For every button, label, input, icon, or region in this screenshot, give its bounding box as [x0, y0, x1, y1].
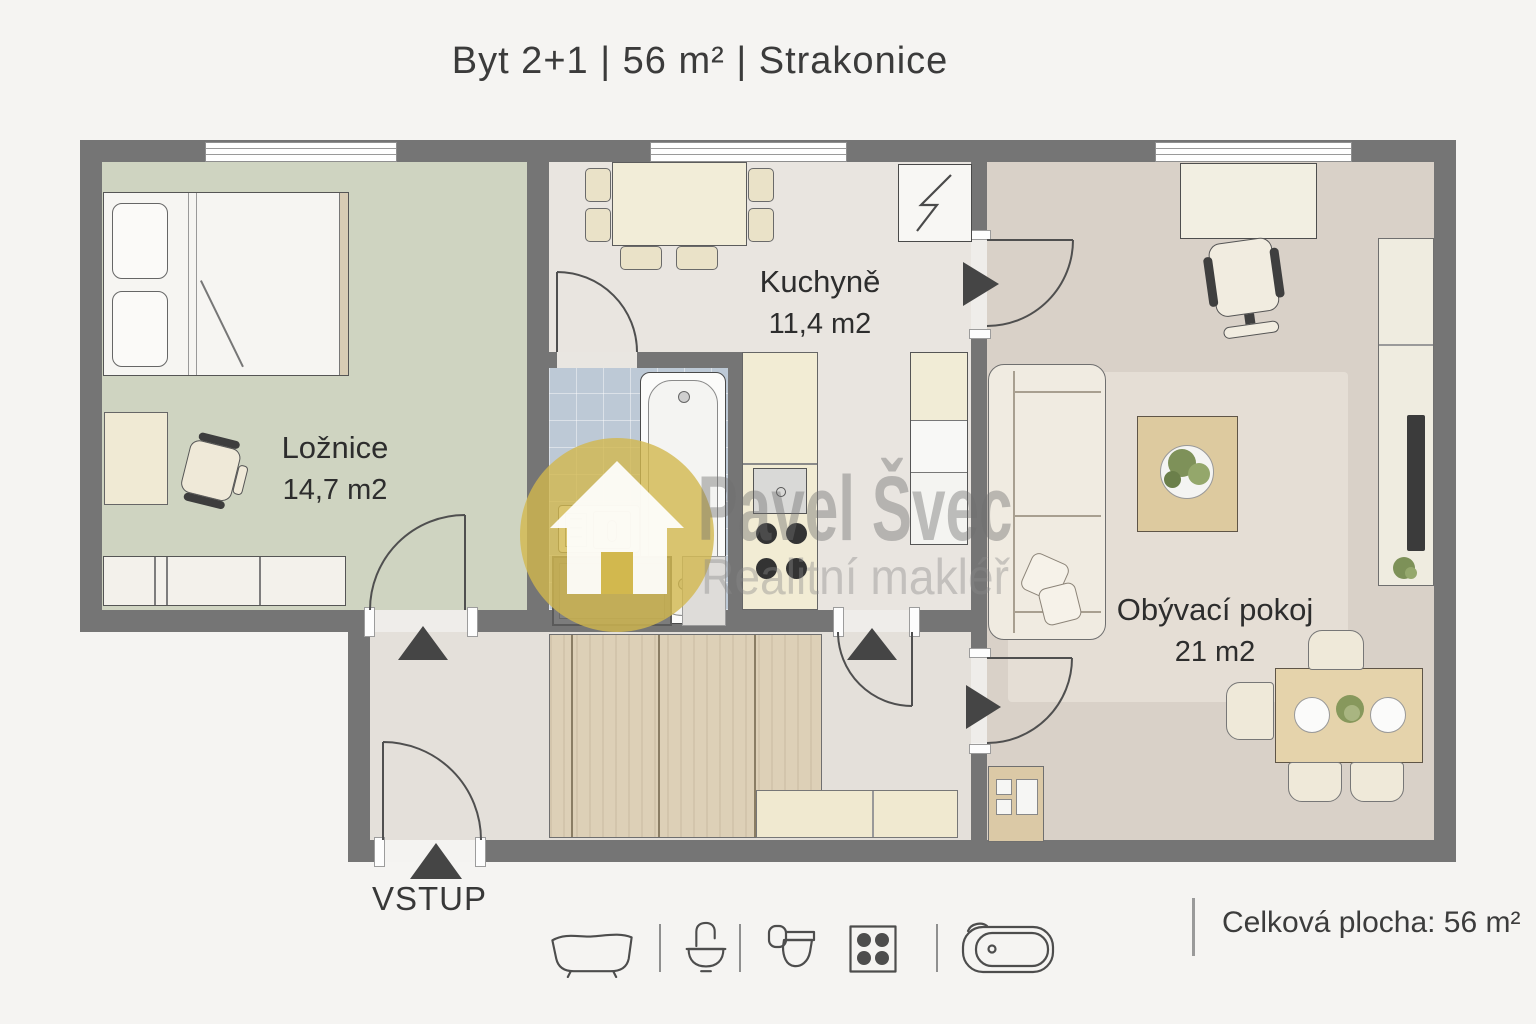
dining-chair — [1350, 762, 1404, 802]
footer-divider — [1192, 898, 1195, 956]
sofa — [988, 364, 1106, 640]
kitchen-chair — [748, 208, 774, 242]
chair-base — [1223, 320, 1280, 340]
door-jamb — [969, 744, 991, 754]
sideboard-divider — [1379, 344, 1433, 346]
window — [650, 142, 847, 162]
living-desk — [1180, 163, 1317, 239]
cabinet-section — [911, 421, 967, 473]
legend-icon-toilet — [766, 920, 818, 978]
plate — [1294, 697, 1330, 733]
room-area: 21 m2 — [1105, 632, 1325, 673]
legend-icon-stove — [848, 924, 898, 974]
door-gap — [971, 237, 987, 330]
living-office-chair — [1205, 236, 1289, 349]
sofa-armrest-line — [1015, 391, 1101, 393]
door-jamb — [969, 648, 991, 658]
wall — [971, 745, 987, 840]
page-title: Byt 2+1 | 56 m² | Strakonice — [0, 40, 1400, 83]
bathtub-top-icon — [960, 920, 1056, 978]
washing-machine-and-sink — [558, 505, 640, 553]
washbasin-icon — [684, 920, 728, 978]
refrigerator — [898, 164, 972, 242]
door-jamb — [969, 329, 991, 339]
sheet-fold — [188, 193, 189, 375]
plant — [1344, 705, 1360, 721]
oven — [753, 468, 807, 514]
bedroom-wardrobe — [103, 556, 346, 606]
legend-icon-washbasin — [684, 920, 728, 978]
wall — [102, 610, 372, 632]
wall — [527, 162, 549, 610]
wall — [912, 610, 971, 632]
tv-sideboard — [1378, 238, 1434, 586]
kitchen-table — [612, 162, 747, 246]
dining-chair — [1288, 762, 1342, 802]
entrance-label: VSTUP — [372, 880, 484, 918]
wall — [478, 840, 1456, 862]
kitchen-counter — [742, 352, 818, 610]
wall — [348, 610, 370, 862]
wall — [80, 140, 102, 632]
room-label-bedroom: Ložnice 14,7 m2 — [240, 426, 430, 511]
kitchen-chair — [676, 246, 718, 270]
washer-door — [593, 511, 631, 549]
hob-burner — [756, 558, 777, 579]
room-name: Ložnice — [240, 426, 430, 470]
plant — [1164, 471, 1181, 488]
door-jamb — [467, 607, 478, 637]
kitchen-chair — [748, 168, 774, 202]
room-label-living: Obývací pokoj 21 m2 — [1105, 588, 1325, 673]
bed-headboard — [339, 193, 348, 375]
sofa-cushion-divider — [1015, 515, 1101, 517]
door-gap — [378, 840, 478, 862]
counter-divider — [743, 463, 817, 465]
plant — [1405, 567, 1417, 579]
cabinet-section — [911, 353, 967, 421]
oven-knob — [776, 487, 786, 497]
sofa-back-line — [1013, 371, 1015, 633]
shoe-cabinet — [988, 766, 1044, 842]
legend-icon-bathtub-top — [960, 920, 1056, 978]
hob-burner — [756, 523, 777, 544]
kitchen-tall-cabinet — [910, 352, 968, 545]
washer-knob — [607, 520, 617, 542]
bathtub-drain — [678, 391, 690, 403]
door-jamb — [374, 837, 385, 867]
room-area: 11,4 m2 — [725, 304, 915, 345]
door-jamb — [475, 837, 486, 867]
kitchen-chair — [585, 168, 611, 202]
legend-divider — [739, 924, 741, 972]
dining-table — [1275, 668, 1423, 763]
toilet-icon — [766, 920, 818, 978]
room-label-kitchen: Kuchyně 11,4 m2 — [725, 260, 915, 345]
door-gap — [971, 655, 987, 743]
kitchen-chair — [585, 208, 611, 242]
legend-divider — [659, 924, 661, 972]
plant — [1188, 463, 1210, 485]
dining-chair — [1226, 682, 1274, 740]
room-name: Kuchyně — [725, 260, 915, 304]
bathtub-side-icon — [548, 920, 636, 978]
shaft-inner — [559, 563, 665, 619]
hall-bench — [756, 790, 958, 838]
wall — [971, 330, 987, 655]
wall — [637, 352, 744, 368]
door-gap — [557, 352, 637, 368]
hob-burner — [786, 558, 807, 579]
sheet-fold — [196, 193, 197, 375]
plate — [1370, 697, 1406, 733]
floorplan-page: Byt 2+1 | 56 m² | Strakonice — [0, 0, 1536, 1024]
total-area-label: Celková plocha: 56 m² — [1222, 906, 1520, 940]
wall — [971, 162, 987, 237]
drawer — [996, 799, 1012, 815]
room-area: 14,7 m2 — [240, 470, 430, 511]
tv — [1407, 415, 1425, 551]
hob-burner — [786, 523, 807, 544]
door-gap — [838, 610, 912, 632]
window — [1155, 142, 1352, 162]
utility-shaft — [552, 556, 672, 626]
door-jamb — [909, 607, 920, 637]
wall — [468, 610, 549, 632]
legend-icon-bathtub-side — [548, 920, 636, 978]
pillow — [112, 291, 168, 367]
door-jamb — [833, 607, 844, 637]
bedroom-desk — [104, 412, 168, 505]
drawer — [1016, 779, 1038, 815]
room-name: Obývací pokoj — [1105, 588, 1325, 632]
legend-divider — [936, 924, 938, 972]
window — [205, 142, 397, 162]
fridge-zigzag — [899, 165, 973, 243]
blanket-fold — [200, 280, 244, 367]
shelf-panel — [565, 513, 587, 547]
coffee-table — [1137, 416, 1238, 532]
wall — [1434, 140, 1456, 862]
double-bed — [103, 192, 349, 376]
wall — [549, 352, 557, 368]
drawer — [996, 779, 1012, 795]
kitchen-chair — [620, 246, 662, 270]
wc-niche — [682, 556, 726, 626]
sofa-pillow — [1037, 581, 1083, 627]
stove-hob-icon — [848, 924, 898, 974]
door-gap — [372, 610, 468, 632]
pillow — [112, 203, 168, 279]
door-jamb — [364, 607, 375, 637]
